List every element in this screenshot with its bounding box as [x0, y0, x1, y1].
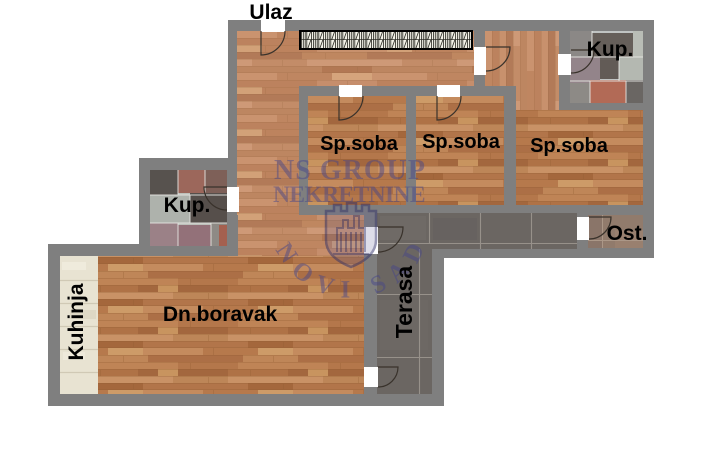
svg-text:Kup.: Kup. — [587, 38, 634, 61]
svg-text:Sp.soba: Sp.soba — [320, 133, 399, 155]
svg-text:Dn.boravak: Dn.boravak — [163, 303, 278, 326]
svg-text:Ost.: Ost. — [607, 222, 648, 245]
svg-text:Kup.: Kup. — [164, 194, 211, 217]
svg-text:Terasa: Terasa — [391, 266, 417, 339]
svg-text:Kuhinja: Kuhinja — [65, 283, 88, 360]
svg-text:Sp.soba: Sp.soba — [530, 135, 609, 157]
svg-text:Sp.soba: Sp.soba — [422, 131, 501, 153]
svg-text:Ulaz: Ulaz — [249, 1, 292, 24]
